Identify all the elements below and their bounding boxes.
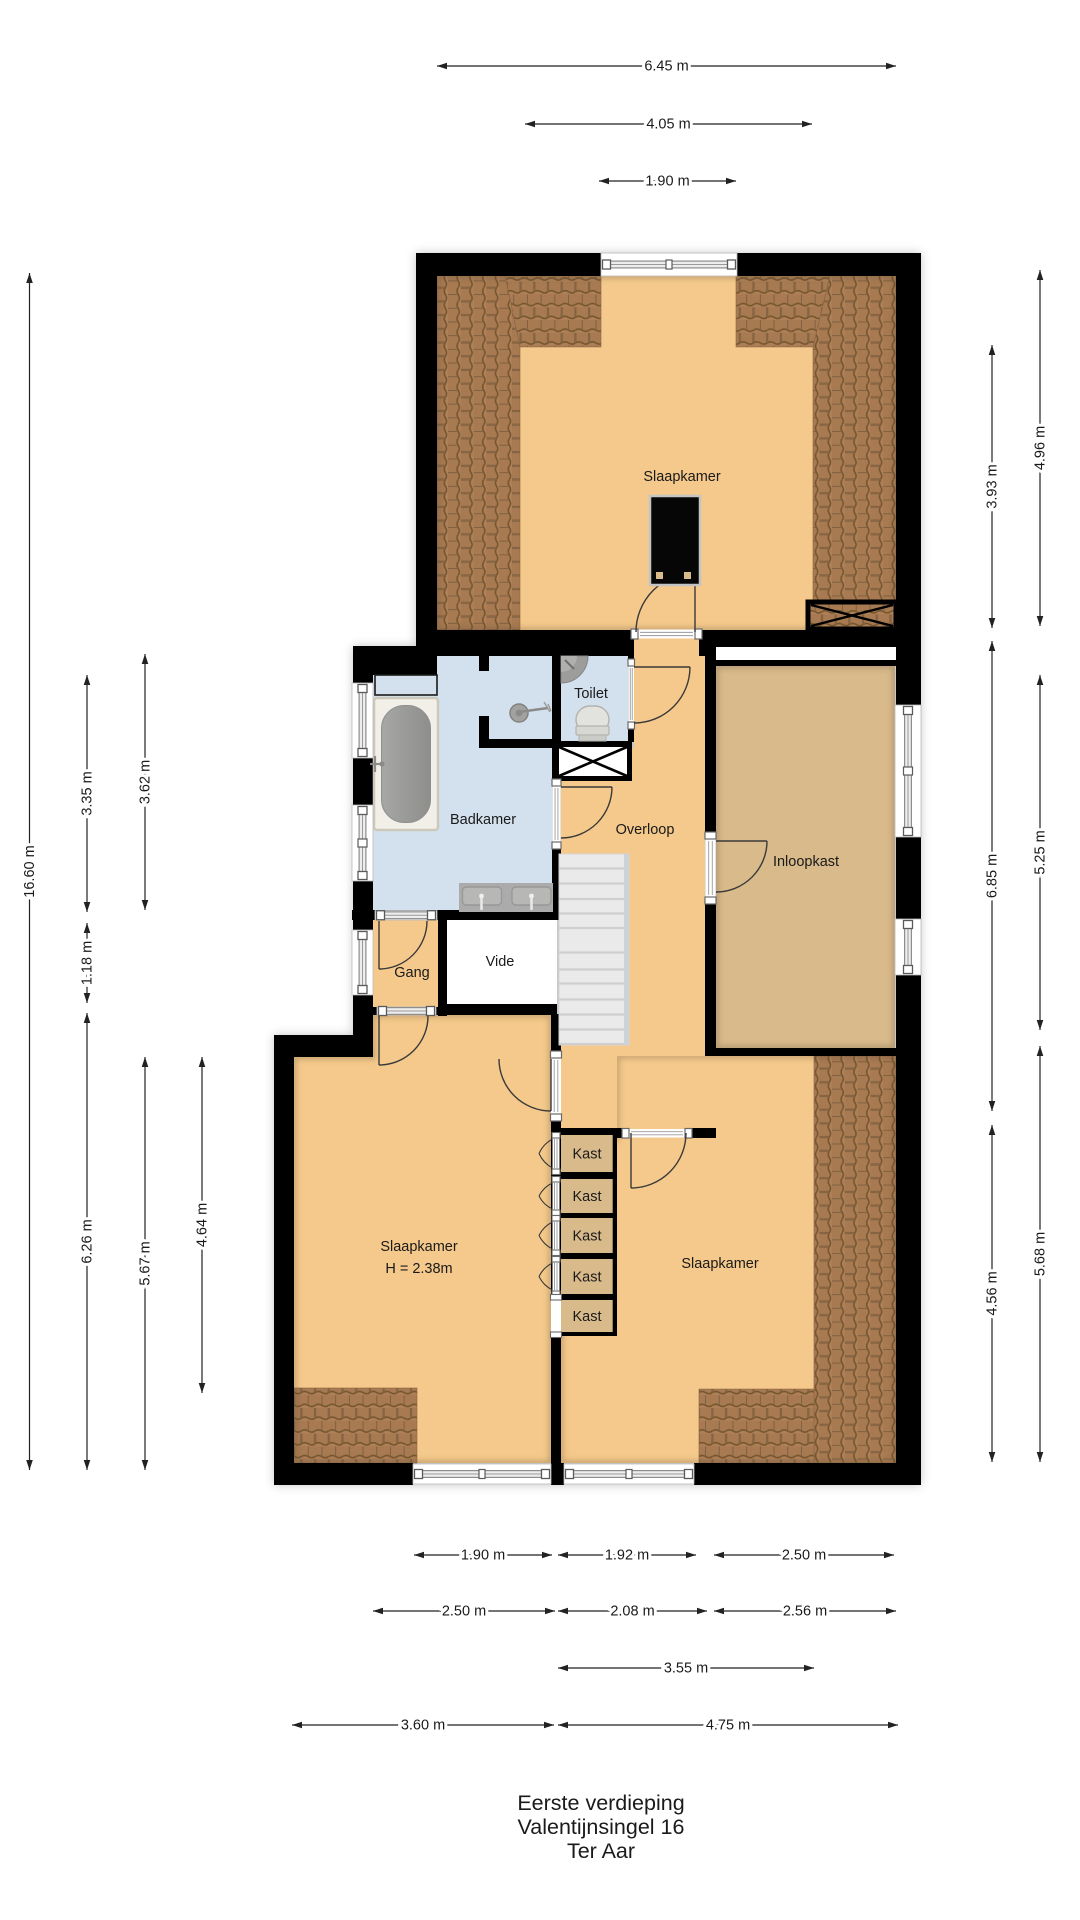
svg-text:Inloopkast: Inloopkast: [773, 854, 839, 870]
svg-text:Kast: Kast: [572, 1270, 601, 1286]
svg-text:2.08 m: 2.08 m: [610, 1604, 654, 1620]
svg-text:Kast: Kast: [572, 1309, 601, 1325]
svg-text:Slaapkamer: Slaapkamer: [643, 469, 721, 485]
svg-text:Slaapkamer: Slaapkamer: [380, 1239, 458, 1255]
svg-text:3.60 m: 3.60 m: [401, 1718, 445, 1734]
svg-text:H = 2.38m: H = 2.38m: [385, 1261, 452, 1277]
svg-text:6.85 m: 6.85 m: [985, 854, 1001, 898]
svg-text:2.56 m: 2.56 m: [783, 1604, 827, 1620]
svg-text:4.75 m: 4.75 m: [706, 1718, 750, 1734]
svg-text:1.90 m: 1.90 m: [461, 1548, 505, 1564]
svg-text:Overloop: Overloop: [616, 822, 675, 838]
svg-text:Slaapkamer: Slaapkamer: [681, 1256, 759, 1272]
svg-text:3.55 m: 3.55 m: [664, 1661, 708, 1677]
svg-text:16.60 m: 16.60 m: [22, 845, 38, 897]
svg-text:4.96 m: 4.96 m: [1033, 426, 1049, 470]
svg-text:Kast: Kast: [572, 1189, 601, 1205]
svg-text:3.93 m: 3.93 m: [985, 464, 1001, 508]
svg-text:Vide: Vide: [486, 954, 515, 970]
svg-text:4.56 m: 4.56 m: [985, 1271, 1001, 1315]
svg-text:Valentijnsingel 16: Valentijnsingel 16: [518, 1815, 685, 1839]
svg-text:2.50 m: 2.50 m: [782, 1548, 826, 1564]
svg-text:1.92 m: 1.92 m: [605, 1548, 649, 1564]
svg-text:Kast: Kast: [572, 1147, 601, 1163]
svg-text:5.25 m: 5.25 m: [1033, 830, 1049, 874]
svg-text:Toilet: Toilet: [574, 686, 608, 702]
svg-text:1.18 m: 1.18 m: [80, 941, 96, 985]
svg-text:2.50 m: 2.50 m: [442, 1604, 486, 1620]
svg-text:3.35 m: 3.35 m: [80, 771, 96, 815]
svg-text:4.05 m: 4.05 m: [646, 117, 690, 133]
svg-text:5.67 m: 5.67 m: [138, 1241, 154, 1285]
svg-text:Kast: Kast: [572, 1229, 601, 1245]
svg-text:4.64 m: 4.64 m: [195, 1203, 211, 1247]
svg-text:Gang: Gang: [394, 965, 429, 981]
svg-text:5.68 m: 5.68 m: [1033, 1232, 1049, 1276]
svg-text:3.62 m: 3.62 m: [138, 760, 154, 804]
svg-text:Eerste verdieping: Eerste verdieping: [517, 1791, 684, 1815]
svg-text:Badkamer: Badkamer: [450, 812, 516, 828]
svg-text:6.26 m: 6.26 m: [80, 1219, 96, 1263]
svg-text:Ter Aar: Ter Aar: [567, 1839, 635, 1863]
svg-text:1.90 m: 1.90 m: [645, 174, 689, 190]
svg-text:6.45 m: 6.45 m: [644, 59, 688, 75]
